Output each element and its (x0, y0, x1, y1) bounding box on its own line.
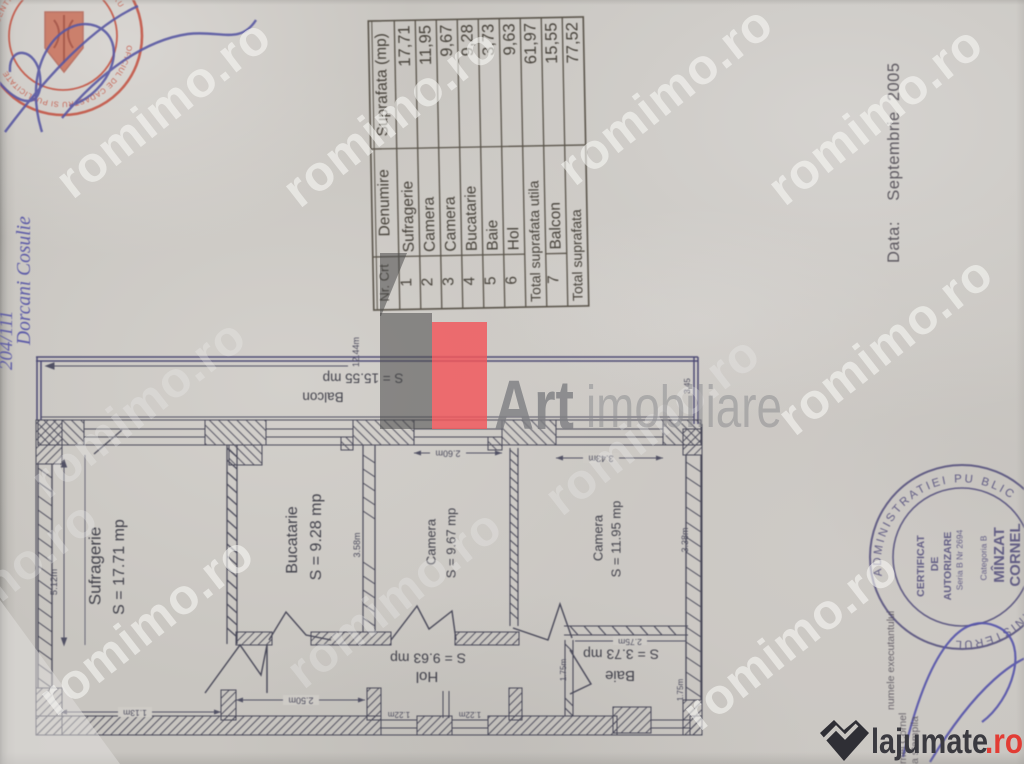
svg-text:lajumate: lajumate (871, 722, 988, 761)
svg-text:.ro: .ro (985, 722, 1023, 761)
svg-text:imobiliare: imobiliare (586, 374, 782, 440)
svg-text:Art: Art (494, 366, 574, 444)
